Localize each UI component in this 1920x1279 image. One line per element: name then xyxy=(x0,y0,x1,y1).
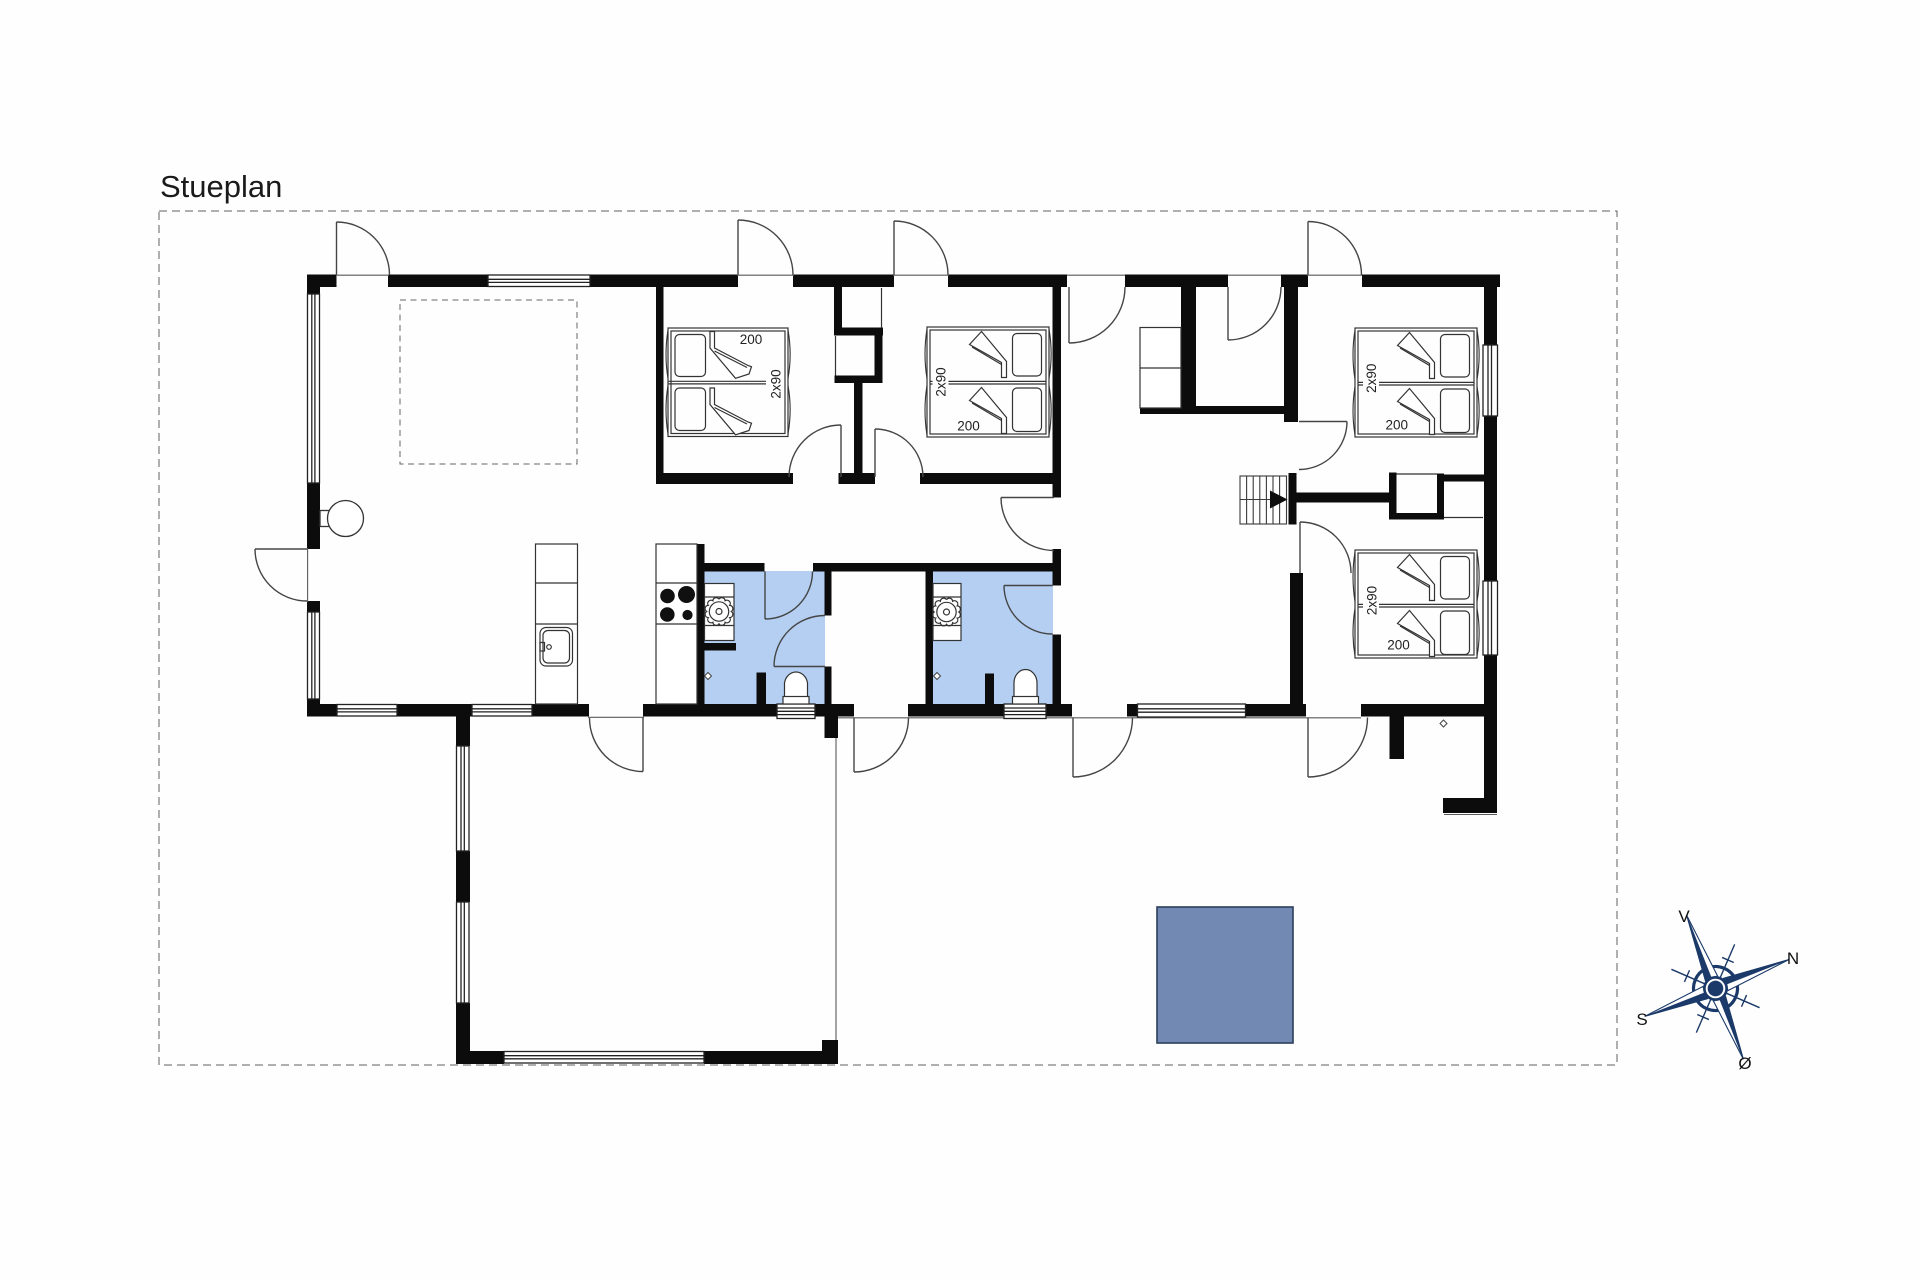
svg-text:200: 200 xyxy=(1387,638,1410,653)
svg-text:Stueplan: Stueplan xyxy=(160,169,282,204)
svg-text:2x90: 2x90 xyxy=(1364,364,1379,393)
svg-text:N: N xyxy=(1787,949,1799,968)
svg-text:2x90: 2x90 xyxy=(769,369,784,398)
svg-text:S: S xyxy=(1636,1010,1647,1029)
svg-text:2x90: 2x90 xyxy=(934,367,949,396)
svg-text:2x90: 2x90 xyxy=(1365,586,1380,615)
svg-text:Ø: Ø xyxy=(1738,1054,1751,1073)
svg-text:200: 200 xyxy=(1386,418,1409,433)
svg-text:200: 200 xyxy=(957,419,980,434)
svg-text:V: V xyxy=(1678,907,1690,926)
svg-text:200: 200 xyxy=(740,332,763,347)
